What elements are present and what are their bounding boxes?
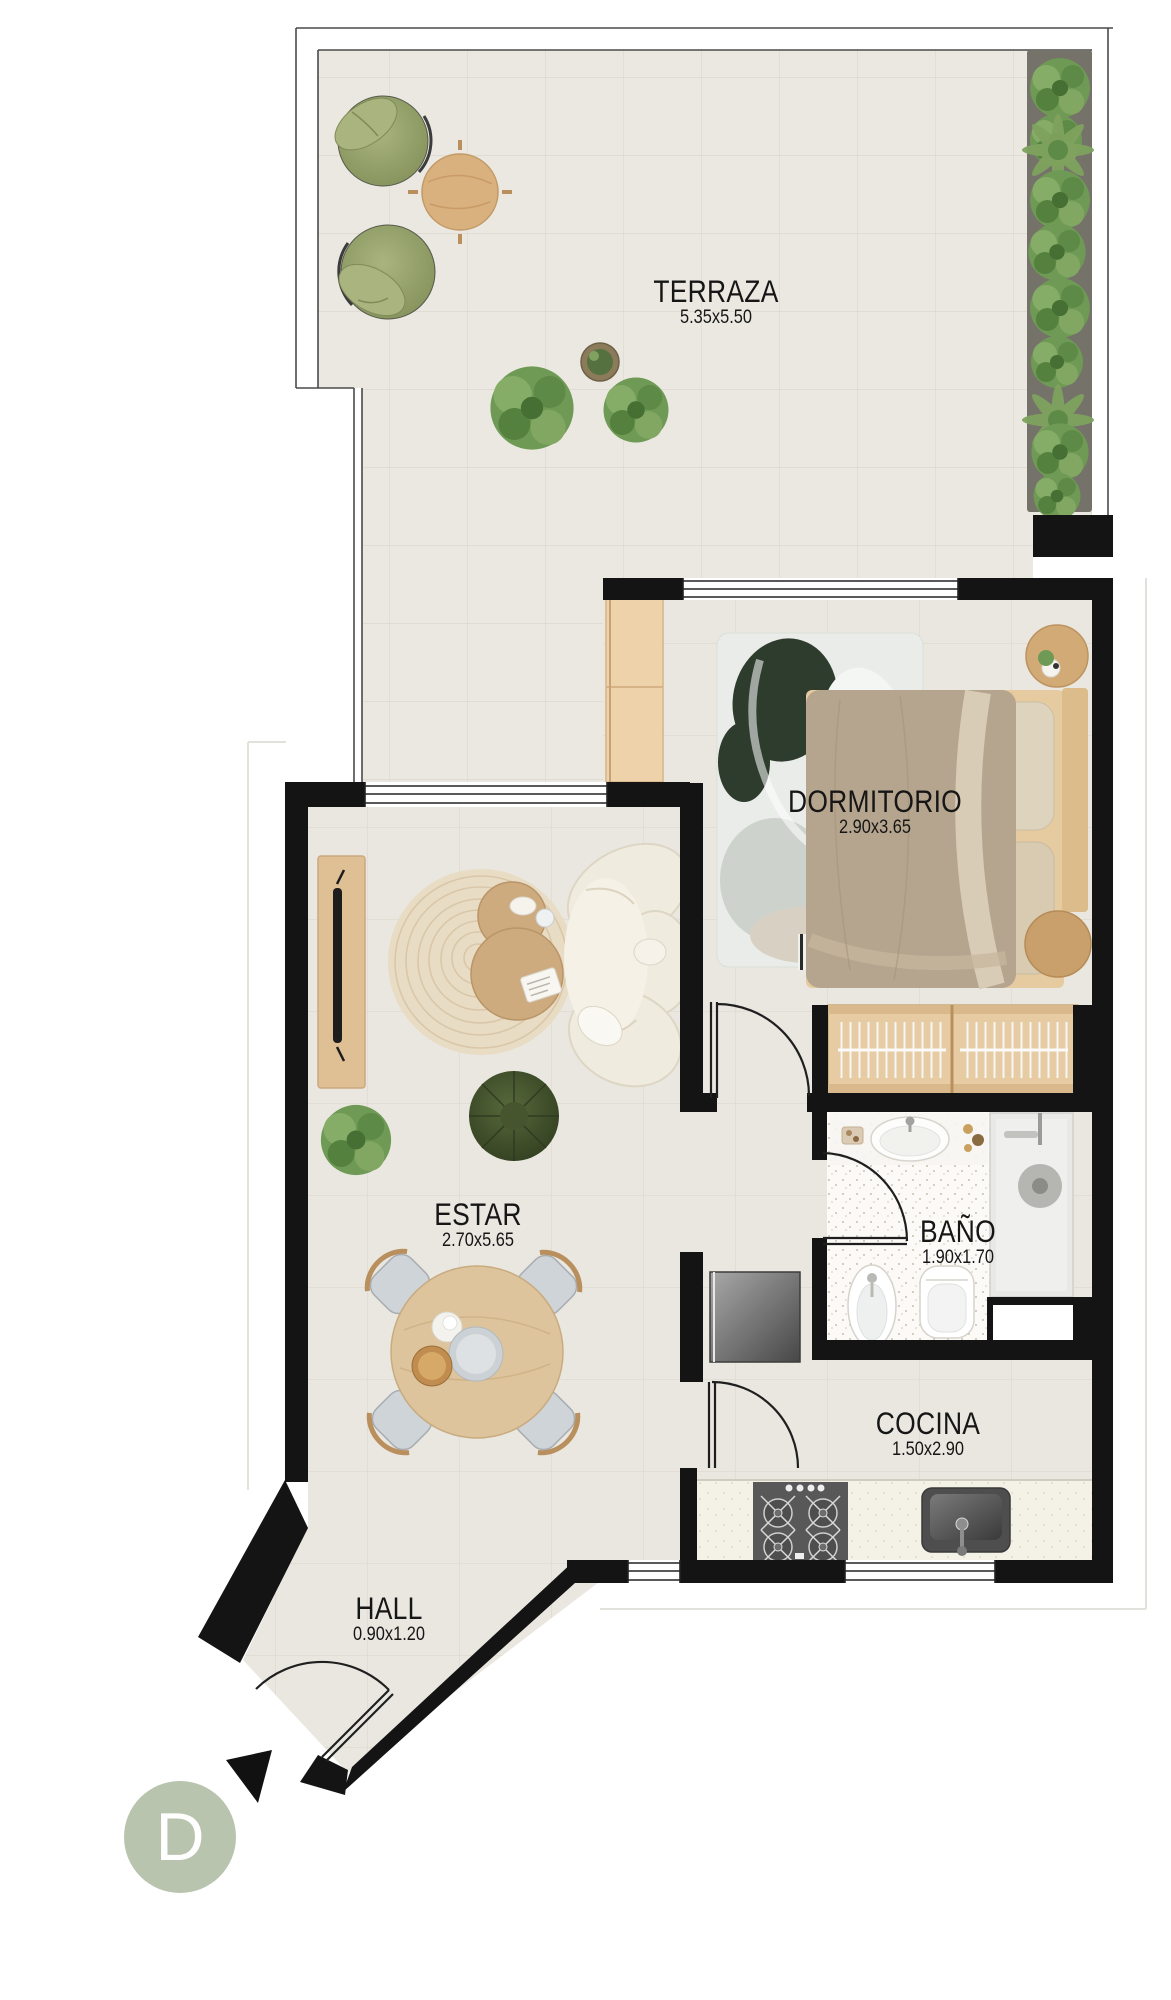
refrigerator: [710, 1272, 800, 1362]
bathroom-vanity: [830, 1113, 988, 1165]
room-name: DORMITORIO: [788, 786, 962, 817]
room-dims: 2.70x5.65: [434, 1230, 522, 1251]
room-label-estar: ESTAR 2.70x5.65: [434, 1199, 522, 1251]
entrance-arrow-icon: [226, 1750, 272, 1803]
room-dims: 1.90x1.70: [920, 1247, 996, 1268]
floor-plan: TERRAZA 5.35x5.50 DORMITORIO 2.90x3.65 E…: [0, 0, 1171, 2000]
room-name: TERRAZA: [653, 276, 778, 307]
room-dims: 2.90x3.65: [788, 817, 962, 838]
room-label-hall: HALL 0.90x1.20: [353, 1593, 425, 1645]
terrace-planter: [1022, 50, 1094, 519]
bath-niche: [993, 1305, 1073, 1340]
shower: [990, 1113, 1073, 1297]
room-dims: 1.50x2.90: [876, 1439, 980, 1460]
toilet: [920, 1266, 974, 1338]
dining-set: [358, 1242, 588, 1461]
unit-badge: D: [124, 1781, 236, 1893]
room-label-terraza: TERRAZA 5.35x5.50: [653, 276, 778, 328]
estar-plant: [321, 1105, 391, 1175]
room-dims: 0.90x1.20: [353, 1624, 425, 1645]
room-label-cocina: COCINA 1.50x2.90: [876, 1408, 980, 1460]
wardrobe: [828, 1005, 1078, 1093]
floor-plan-drawing: [0, 0, 1171, 2000]
kitchen-sink: [922, 1488, 1010, 1556]
bidet: [848, 1265, 896, 1347]
bedside-table: [1025, 911, 1091, 977]
room-name: BAÑO: [920, 1216, 996, 1247]
room-label-dormitorio: DORMITORIO 2.90x3.65: [788, 786, 962, 838]
room-dims: 5.35x5.50: [653, 307, 778, 328]
room-name: ESTAR: [434, 1199, 522, 1230]
cooktop: [753, 1482, 848, 1564]
tv-console: [318, 856, 365, 1088]
room-name: HALL: [353, 1593, 425, 1624]
room-label-bano: BAÑO 1.90x1.70: [920, 1216, 996, 1268]
bedside-table: [1026, 625, 1088, 687]
closet-cabinet: [606, 591, 663, 782]
pouf: [469, 1071, 559, 1161]
room-name: COCINA: [876, 1408, 980, 1439]
